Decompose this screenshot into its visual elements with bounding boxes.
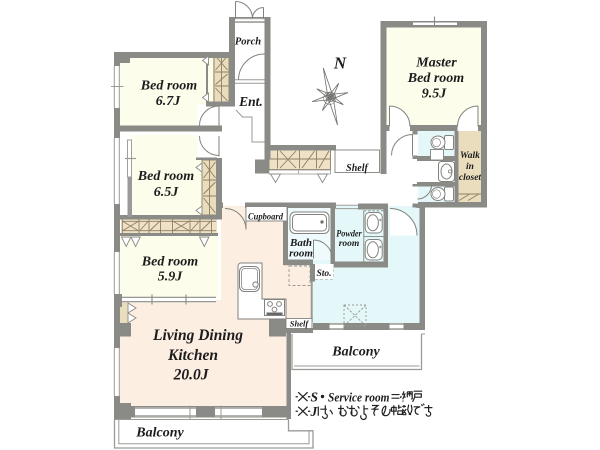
- svg-text:5.9J: 5.9J: [158, 270, 184, 285]
- svg-text:Service room: Service room: [328, 390, 390, 405]
- svg-text:6.7J: 6.7J: [156, 94, 182, 109]
- svg-text:6.5J: 6.5J: [154, 185, 180, 200]
- svg-text:Master: Master: [415, 56, 457, 71]
- svg-text:20.0J: 20.0J: [173, 367, 210, 384]
- svg-text:Cupboard: Cupboard: [248, 213, 283, 223]
- svg-text:S: S: [311, 390, 319, 405]
- svg-text:Kitchen: Kitchen: [167, 347, 218, 364]
- svg-text:in: in: [466, 162, 474, 172]
- svg-text:closet: closet: [459, 173, 482, 183]
- svg-text:Bed room: Bed room: [407, 71, 465, 86]
- svg-text:Shelf: Shelf: [346, 163, 369, 174]
- svg-text:Bed room: Bed room: [141, 255, 199, 270]
- svg-text:room: room: [339, 239, 360, 249]
- svg-text:J: J: [310, 404, 319, 419]
- svg-text:room: room: [289, 248, 313, 260]
- svg-text:N: N: [333, 54, 347, 73]
- svg-text:Living Dining: Living Dining: [152, 327, 243, 344]
- svg-text:Shelf: Shelf: [290, 319, 310, 329]
- svg-text:Porch: Porch: [235, 37, 261, 48]
- svg-text:Balcony: Balcony: [135, 426, 184, 441]
- svg-text:Walk: Walk: [460, 151, 480, 161]
- svg-text:Sto.: Sto.: [316, 269, 331, 279]
- svg-text:Bed room: Bed room: [140, 79, 198, 94]
- svg-text:Powder: Powder: [336, 230, 362, 240]
- svg-text:Ent.: Ent.: [238, 94, 263, 109]
- svg-text:Balcony: Balcony: [331, 345, 380, 360]
- svg-text:9.5J: 9.5J: [422, 87, 448, 102]
- svg-text:Bed room: Bed room: [137, 169, 195, 184]
